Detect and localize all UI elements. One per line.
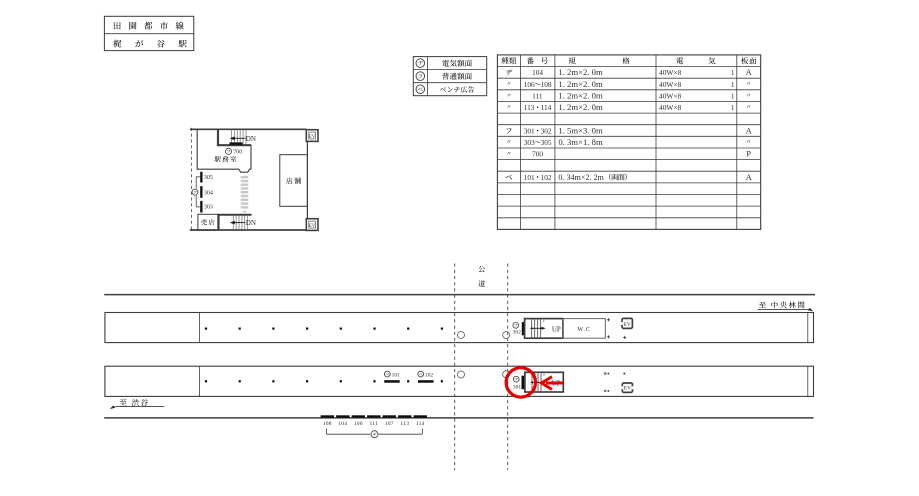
svg-text:102: 102	[425, 372, 434, 378]
svg-text:302: 302	[513, 330, 522, 336]
svg-text:113: 113	[524, 103, 535, 112]
svg-text:114: 114	[416, 421, 425, 427]
svg-text:DN: DN	[246, 219, 256, 227]
svg-text:303: 303	[204, 204, 213, 210]
svg-text:UP: UP	[552, 325, 561, 333]
svg-text:302: 302	[541, 126, 552, 135]
svg-text:40W×8: 40W×8	[659, 91, 682, 100]
svg-text:106: 106	[354, 421, 363, 427]
svg-text:304: 304	[204, 190, 213, 196]
svg-text:1. 2m×2. 0m: 1. 2m×2. 0m	[558, 68, 603, 77]
svg-text:1: 1	[731, 92, 735, 100]
svg-text:114: 114	[541, 103, 552, 112]
svg-text:A: A	[746, 173, 752, 182]
svg-text:102: 102	[541, 173, 552, 182]
svg-text:108: 108	[541, 80, 552, 89]
svg-text:1. 2m×2. 0m: 1. 2m×2. 0m	[558, 103, 603, 112]
svg-text:305: 305	[204, 175, 213, 181]
svg-text:700: 700	[233, 150, 242, 156]
svg-text:P: P	[746, 150, 751, 159]
svg-text:106: 106	[524, 80, 535, 89]
svg-text:104: 104	[338, 421, 347, 427]
svg-text:111: 111	[532, 91, 543, 100]
svg-text:301: 301	[524, 126, 535, 135]
svg-text:DN: DN	[246, 135, 256, 143]
svg-text:108: 108	[323, 421, 332, 427]
svg-text:1: 1	[731, 104, 735, 112]
svg-text:W.C: W.C	[577, 326, 590, 333]
svg-text:EV: EV	[309, 224, 316, 229]
svg-text:A: A	[746, 68, 752, 77]
svg-text:101: 101	[392, 372, 401, 378]
svg-text:EV: EV	[624, 386, 631, 392]
svg-text:301: 301	[513, 385, 522, 391]
svg-text:303: 303	[524, 138, 535, 147]
svg-text:107: 107	[385, 421, 394, 427]
svg-text:101: 101	[524, 173, 535, 182]
svg-text:0. 3m×1. 8m: 0. 3m×1. 8m	[558, 138, 603, 147]
svg-text:104: 104	[532, 68, 543, 77]
svg-text:0. 34m×2. 2m: 0. 34m×2. 2m	[558, 173, 604, 182]
svg-text:111: 111	[370, 421, 379, 427]
svg-text:1. 2m×2. 0m: 1. 2m×2. 0m	[558, 91, 603, 100]
svg-text:1: 1	[731, 69, 735, 77]
svg-text:40W×8: 40W×8	[659, 103, 682, 112]
svg-text:EV: EV	[309, 135, 316, 140]
svg-text:1: 1	[731, 81, 735, 89]
svg-text:A: A	[746, 126, 752, 135]
svg-text:305: 305	[541, 138, 552, 147]
svg-text:700: 700	[532, 150, 543, 159]
svg-text:1. 5m×3. 0m: 1. 5m×3. 0m	[558, 126, 603, 135]
svg-text:40W×8: 40W×8	[659, 68, 682, 77]
svg-text:113: 113	[400, 421, 409, 427]
svg-text:40W×8: 40W×8	[659, 80, 682, 89]
svg-text:1. 2m×2. 0m: 1. 2m×2. 0m	[558, 80, 603, 89]
svg-text:EV: EV	[624, 322, 631, 328]
